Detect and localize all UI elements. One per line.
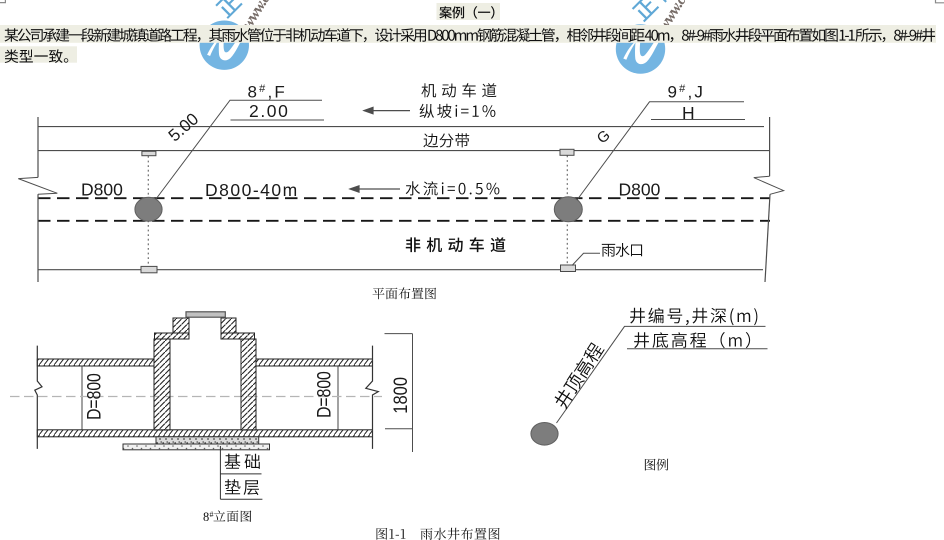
svg-text:D=800: D=800 bbox=[313, 371, 335, 418]
svg-text:#: # bbox=[210, 510, 214, 519]
svg-text:2.00: 2.00 bbox=[249, 101, 289, 121]
svg-text:8: 8 bbox=[203, 510, 209, 524]
svg-text:D800: D800 bbox=[619, 179, 661, 199]
svg-text:1800: 1800 bbox=[390, 377, 412, 414]
svg-text:8#,F: 8#,F bbox=[248, 83, 288, 102]
svg-text:H: H bbox=[682, 103, 695, 123]
svg-text:D800: D800 bbox=[81, 179, 123, 199]
svg-text:D=800: D=800 bbox=[83, 373, 105, 420]
svg-text:D800-40m: D800-40m bbox=[205, 180, 299, 200]
